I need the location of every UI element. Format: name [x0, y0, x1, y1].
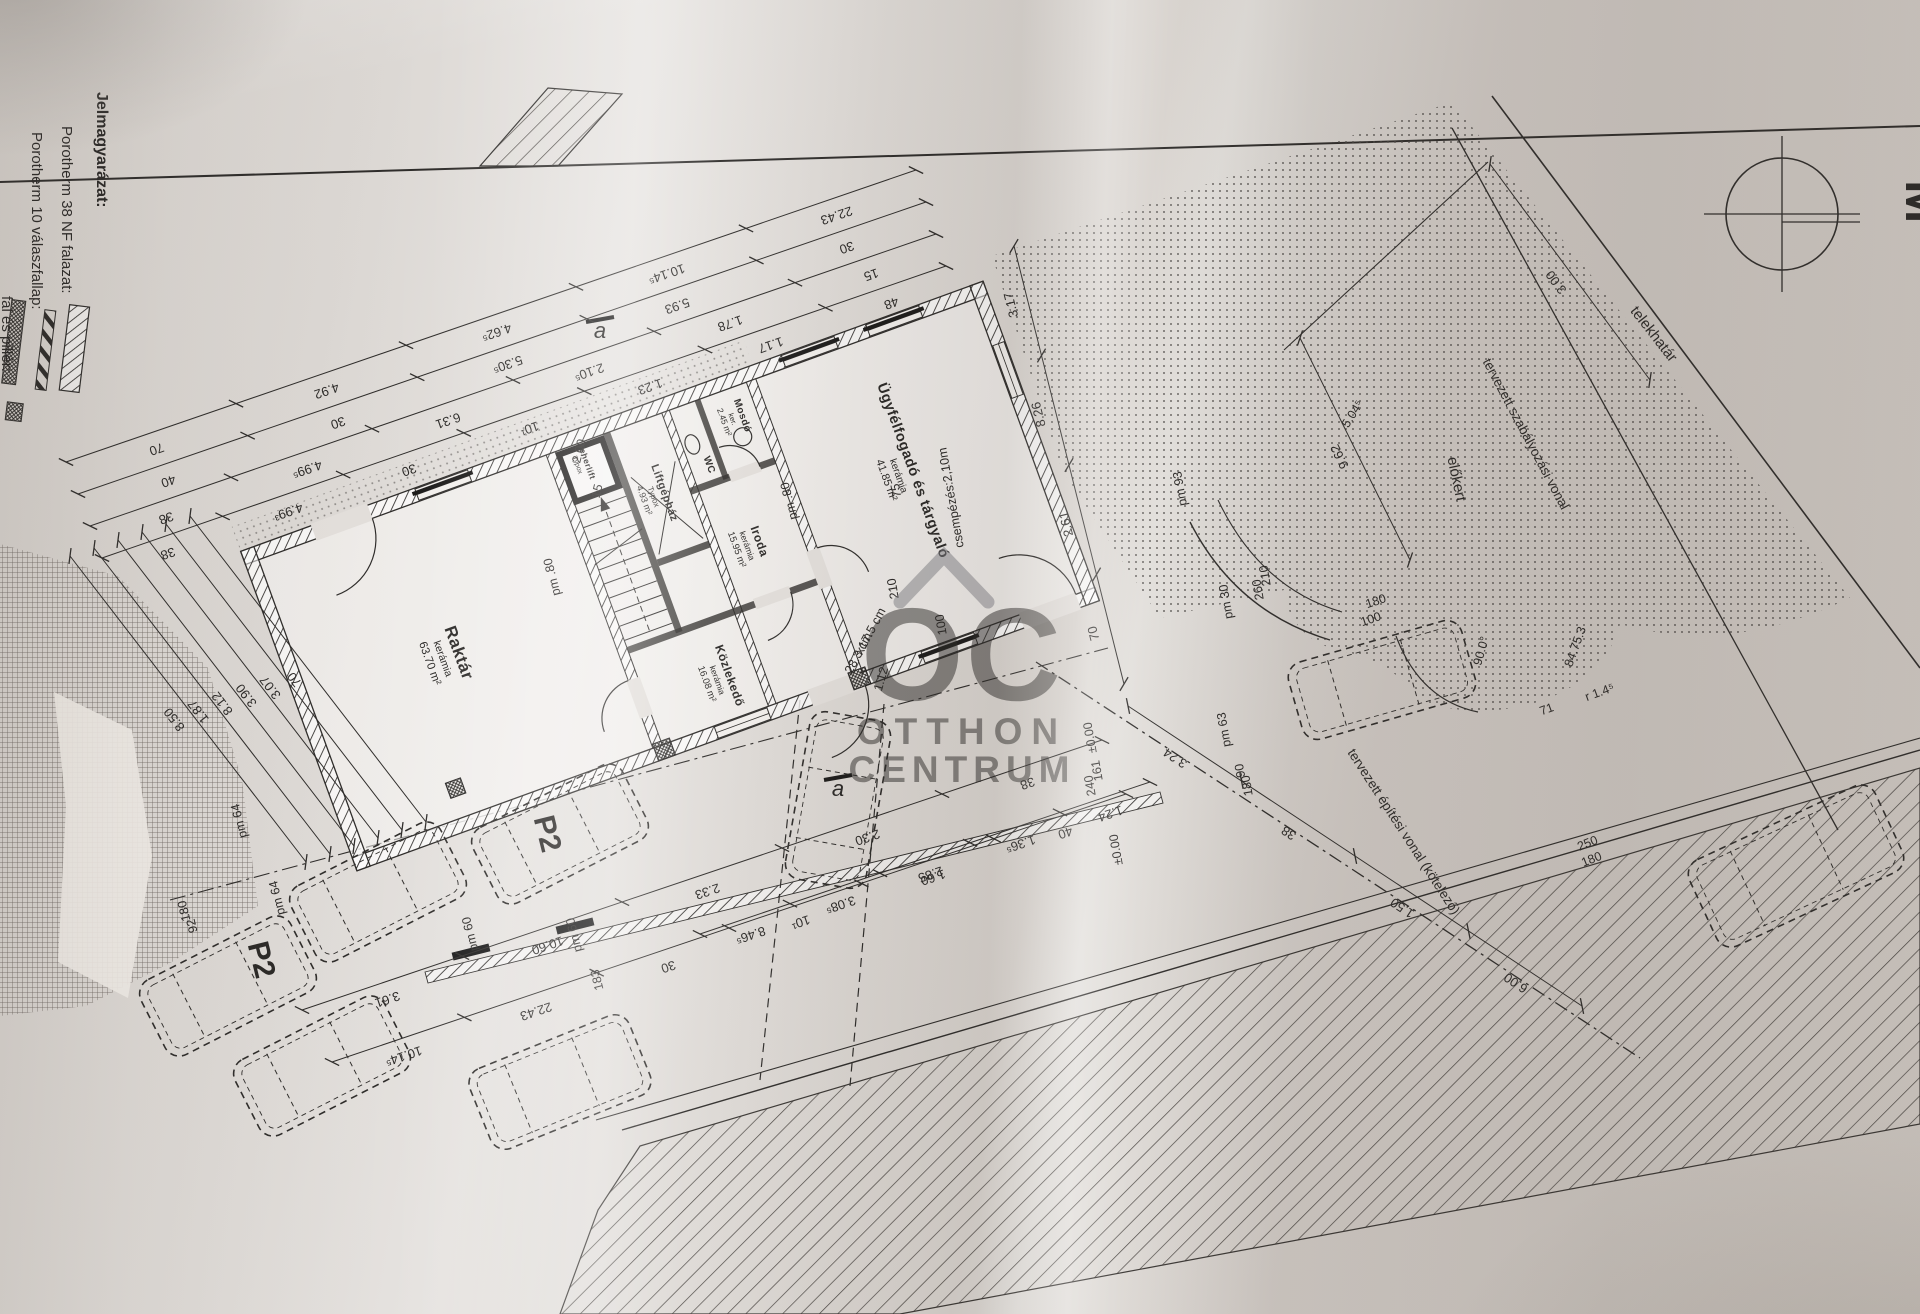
- compass-icon: [1704, 136, 1860, 292]
- dimension-value: 10.14⁵: [383, 1043, 424, 1069]
- annotation-text: pm 63: [1214, 711, 1234, 748]
- dimension-value: 2.30: [853, 826, 882, 848]
- legend-swatch-pillar: [5, 402, 23, 422]
- dimension-value: 30: [659, 957, 678, 976]
- legend-swatch-wall-hatch: [59, 305, 89, 393]
- dimension-value: 30: [329, 413, 348, 432]
- site-plan-drawing: Jelmagyarázat: Porotherm 38 NF falazat: …: [0, 0, 1920, 1314]
- parking-stall-label-2: P2: [241, 938, 282, 982]
- annotation-text: r 1.4⁵: [1583, 680, 1616, 703]
- dimension-value: 2.10⁵: [572, 360, 606, 384]
- dimension-value: 4.62⁵: [480, 320, 514, 344]
- otthon-centrum-watermark: OC OTTHON CENTRUM: [849, 556, 1076, 790]
- dimension-value: 1.78: [716, 312, 745, 334]
- dimension-chain: 8.46⁵3.08⁵2.851.36⁵1.24: [693, 778, 1157, 947]
- parking-stall-label: P2: [527, 812, 568, 856]
- legend-title: Jelmagyarázat:: [93, 92, 110, 208]
- dimension-value: 4.92: [312, 380, 341, 402]
- dimension-value: 30: [838, 238, 857, 257]
- scale-label: M: [1894, 180, 1920, 223]
- dimension-value: 22.43: [819, 203, 855, 228]
- annotation-text: a: [594, 318, 606, 343]
- road-hatch-band: [560, 768, 1920, 1314]
- dimension-value: 22.43: [518, 999, 554, 1024]
- site-plan-photo: Jelmagyarázat: Porotherm 38 NF falazat: …: [0, 0, 1920, 1314]
- dimension-value: 1.17: [756, 334, 785, 356]
- road: [560, 738, 1920, 1314]
- dimension-value: 38: [1278, 823, 1298, 843]
- dimension-value: 40: [159, 472, 178, 491]
- dimension-value: 3.07: [256, 673, 283, 702]
- annotation-text: ±0.00: [1080, 721, 1099, 754]
- annotation-text: 183: [588, 968, 607, 992]
- watermark-line2: CENTRUM: [849, 749, 1076, 790]
- dimension-value: 8.46⁵: [734, 923, 768, 947]
- sheet-frame-line: [0, 126, 1920, 182]
- dimension-value: 3.08⁵: [824, 893, 858, 917]
- dimension-value: 1.24: [1096, 803, 1125, 825]
- watermark-logo: OC: [861, 581, 1063, 728]
- annotation-text: 180: [1238, 774, 1255, 797]
- legend-item-porotherm38: Porotherm 38 NF falazat:: [58, 126, 75, 294]
- dimension-value: 2.33: [693, 880, 722, 902]
- dimension-value: 10¹: [789, 912, 812, 932]
- dimension-value: 48: [882, 294, 901, 313]
- building-line-label: tervezett építési vonal (kötelező): [1345, 746, 1463, 917]
- car-outline: [464, 1010, 656, 1154]
- legend: Jelmagyarázat: Porotherm 38 NF falazat: …: [0, 92, 110, 428]
- annotation-text: pm 64: [266, 879, 288, 916]
- legend-item-porotherm10: Porotherm 10 válaszfallap:: [28, 132, 45, 310]
- annotation-text: pm 60: [459, 915, 481, 952]
- front-garden-area: [992, 102, 1850, 711]
- dimension-value: 3.90: [232, 681, 259, 710]
- dimension-value: 70: [147, 440, 166, 459]
- dimension-value: 3.24: [1160, 745, 1189, 771]
- dimension-value: 6.31: [434, 410, 463, 432]
- dimension-value: 15: [862, 265, 881, 284]
- dimension-value: 10.60: [530, 933, 566, 958]
- dimension-value: 10.14⁵: [646, 261, 687, 288]
- annotation-text: a: [832, 776, 844, 801]
- annotation-text: ±0.00: [1106, 833, 1125, 866]
- legend-swatch-partition: [35, 310, 56, 391]
- dimension-value: 70: [1084, 625, 1102, 643]
- watermark-line1: OTTHON: [857, 711, 1067, 752]
- dimension-value: 5.93: [663, 295, 692, 317]
- dimension-value: 38: [159, 544, 178, 563]
- dimension-value: 4.99⁵: [290, 457, 324, 481]
- annotation-text: 71: [1538, 700, 1556, 718]
- annotation-text: 75: [888, 483, 904, 499]
- dimension-value: 5.30⁵: [491, 352, 525, 376]
- hatched-wedge: [480, 88, 622, 166]
